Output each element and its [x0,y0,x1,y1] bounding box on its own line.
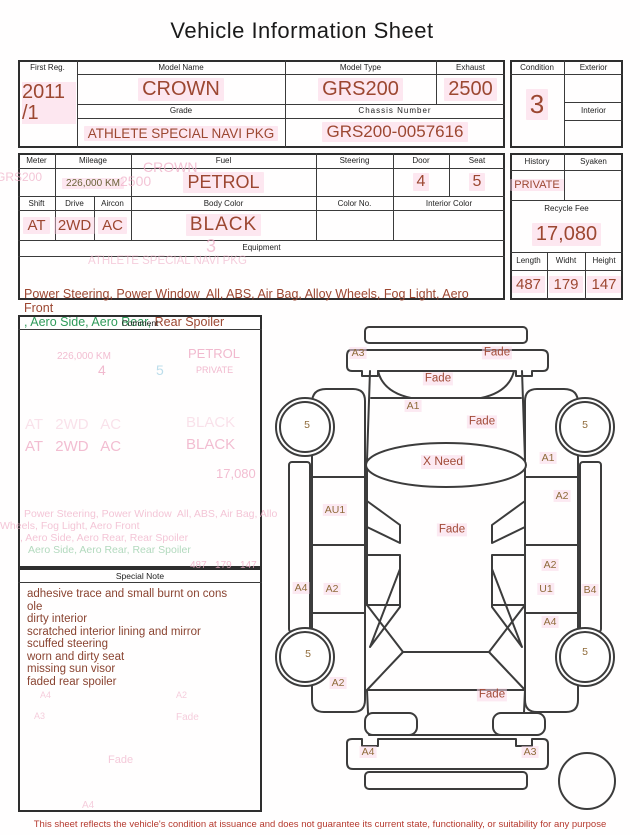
note-line: scratched interior lining and mirror [27,626,257,639]
chassis-number-value: GRS200-0057616 [285,120,505,144]
diagram-label-a2-left-door: A2 [324,583,341,595]
rear-spoiler-shape [365,327,527,343]
body-color-label: Body Color [131,199,316,209]
model-type-value: GRS200 [285,76,436,102]
diagram-label-wheel-rr: 5 [580,419,590,431]
seat-text: 5 [469,173,486,191]
grid-line [510,270,623,271]
diagram-label-a4-right: A4 [542,616,559,628]
vehicle-information-sheet: Vehicle Information Sheet First Reg. 201… [0,0,640,835]
note-line: scuffed steering [27,638,257,651]
grid-line [18,196,505,197]
grid-line [510,74,623,75]
diagram-label-u1: U1 [537,583,554,595]
first-reg-month: /1 [22,103,76,124]
mileage-label: Mileage [55,156,131,166]
note-line: worn and dirty seat [27,651,257,664]
note-line: dirty interior [27,613,257,626]
condition-value: 3 [510,86,564,122]
headlight-right [493,713,545,735]
color-no-label: Color No. [316,199,393,209]
grade-text: ATHLETE SPECIAL NAVI PKG [84,126,279,141]
aircon-label: Aircon [94,199,131,209]
exhaust-text: 2500 [444,78,497,101]
windshield-shape [367,652,525,690]
diagram-label-a2-right-upper: A2 [554,490,571,502]
diagram-label-a2-right-mid: A2 [542,559,559,571]
note-line: adhesive trace and small burnt on cons [27,588,257,601]
page-title: Vehicle Information Sheet [0,18,604,44]
seat-value: 5 [449,172,505,192]
length-label: Length [510,256,547,266]
history-value: PRIVATE [510,176,564,194]
length-value: 487 [510,274,547,294]
headlight-left [365,713,417,735]
grid-line [18,582,262,583]
diagram-label-x-need: X Need [421,455,465,469]
comment-box [18,315,262,568]
fuel-text: PETROL [183,172,263,193]
diagram-label-wheel-fr: 5 [580,646,590,658]
grid-line [18,210,505,211]
width-value: 179 [547,274,585,294]
grid-line [510,200,623,201]
drive-label: Drive [55,199,94,209]
body-color-text: BLACK [186,214,261,236]
exhaust-value: 2500 [436,76,505,102]
a-pillar-right [492,569,522,647]
width-text: 179 [549,276,582,293]
first-reg-year: 2011 [22,82,76,103]
first-reg-value: 2011 /1 [22,82,76,124]
special-note-text: adhesive trace and small burnt on cons o… [27,588,257,688]
diagram-label-fade-cabin: Fade [437,523,467,536]
fuel-value: PETROL [131,170,316,194]
equipment-label: Equipment [18,243,505,253]
car-diagram [270,315,640,810]
sill-left [289,462,310,632]
shift-text: AT [23,217,49,234]
shift-label: Shift [18,199,55,209]
height-value: 147 [585,274,623,294]
diagram-label-a3-front-bumper: A3 [522,746,539,758]
diagram-label-fade-bumper: Fade [482,346,512,359]
body-color-value: BLACK [131,212,316,238]
disclaimer: This sheet reflects the vehicle's condit… [0,819,640,830]
equipment-line1: Power Steering, Power Window All, ABS, A… [24,287,500,315]
grid-line [564,102,623,103]
meter-label: Meter [18,156,55,166]
grid-line [510,252,623,253]
drive-text: 2WD [54,217,95,234]
condition-text: 3 [526,89,548,120]
height-text: 147 [587,276,620,293]
grid-line [510,170,623,171]
condition-label: Condition [510,63,564,73]
diagram-label-wheel-fl: 5 [303,648,313,660]
note-line: ole [27,601,257,614]
model-name-text: CROWN [138,78,224,101]
front-lower-bar [365,772,527,789]
door-label: Door [393,156,449,166]
diagram-label-a1-trunk: A1 [405,400,422,412]
aircon-value: AC [94,214,131,236]
fuel-label: Fuel [131,156,316,166]
diagram-label-wheel-rl: 5 [302,419,312,431]
model-type-text: GRS200 [318,78,403,101]
diagram-label-a4-left-sill: A4 [293,582,310,594]
model-name-value: CROWN [77,76,285,102]
aircon-text: AC [98,217,127,234]
front-door-right [525,545,578,613]
interior-color-label: Interior Color [393,199,505,209]
seat-label: Seat [449,156,505,166]
mileage-text: 226,000 KM [62,178,124,189]
chassis-number-text: GRS200-0057616 [322,122,467,142]
recycle-fee-label: Recycle Fee [510,204,623,214]
syaken-label: Syaken [564,157,623,167]
grade-value: ATHLETE SPECIAL NAVI PKG [77,122,285,144]
grid-line [18,168,505,169]
sill-right [580,462,601,632]
history-text: PRIVATE [510,179,563,191]
diagram-label-a3-rear: A3 [350,347,367,359]
note-line: faded rear spoiler [27,676,257,689]
comment-label: Comment [18,318,262,328]
a-pillar-left [370,569,400,647]
grid-line [564,120,623,121]
grid-line [77,118,505,119]
rear-glass-corner [481,371,514,398]
spare-wheel [559,753,615,809]
diagram-label-a2-front-left: A2 [330,677,347,689]
rear-glass-corner [378,371,411,398]
mileage-value: 226,000 KM [55,175,131,191]
diagram-label-b4: B4 [582,584,599,596]
side-glass-left [367,501,400,543]
side-glass-right [492,501,525,543]
diagram-label-fade-glass: Fade [423,372,453,385]
length-text: 487 [512,276,545,293]
special-note-label: Special Note [18,571,262,581]
exterior-label: Exterior [564,63,623,73]
grade-label: Grade [77,106,285,116]
width-label: Widht [547,256,585,266]
exhaust-label: Exhaust [436,63,505,73]
steering-label: Steering [316,156,393,166]
history-label: History [510,157,564,167]
diagram-label-fade-hood: Fade [477,688,507,701]
height-label: Height [585,256,623,266]
interior-label: Interior [564,106,623,116]
recycle-fee-value: 17,080 [510,220,623,248]
front-door-left [312,545,365,613]
chassis-number-label: Chassis Number [285,106,505,116]
grid-line [18,329,262,330]
door-value: 4 [393,172,449,192]
grid-line [77,74,505,75]
diagram-label-a4-front-bumper: A4 [360,746,377,758]
diagram-label-fade-trunk: Fade [467,415,497,428]
shift-value: AT [18,214,55,236]
first-reg-label: First Reg. [18,63,77,73]
note-line: missing sun visor [27,663,257,676]
rear-door-right [525,477,578,545]
door-text: 4 [413,173,430,191]
front-bumper-shape [347,739,548,769]
drive-value: 2WD [55,214,94,236]
diagram-label-au1: AU1 [323,504,347,516]
model-name-label: Model Name [77,63,285,73]
grid-line [18,256,505,257]
model-type-label: Model Type [285,63,436,73]
recycle-fee-text: 17,080 [532,223,601,246]
grid-line [18,240,505,241]
grid-line [77,104,505,105]
diagram-label-a1-right: A1 [540,452,557,464]
